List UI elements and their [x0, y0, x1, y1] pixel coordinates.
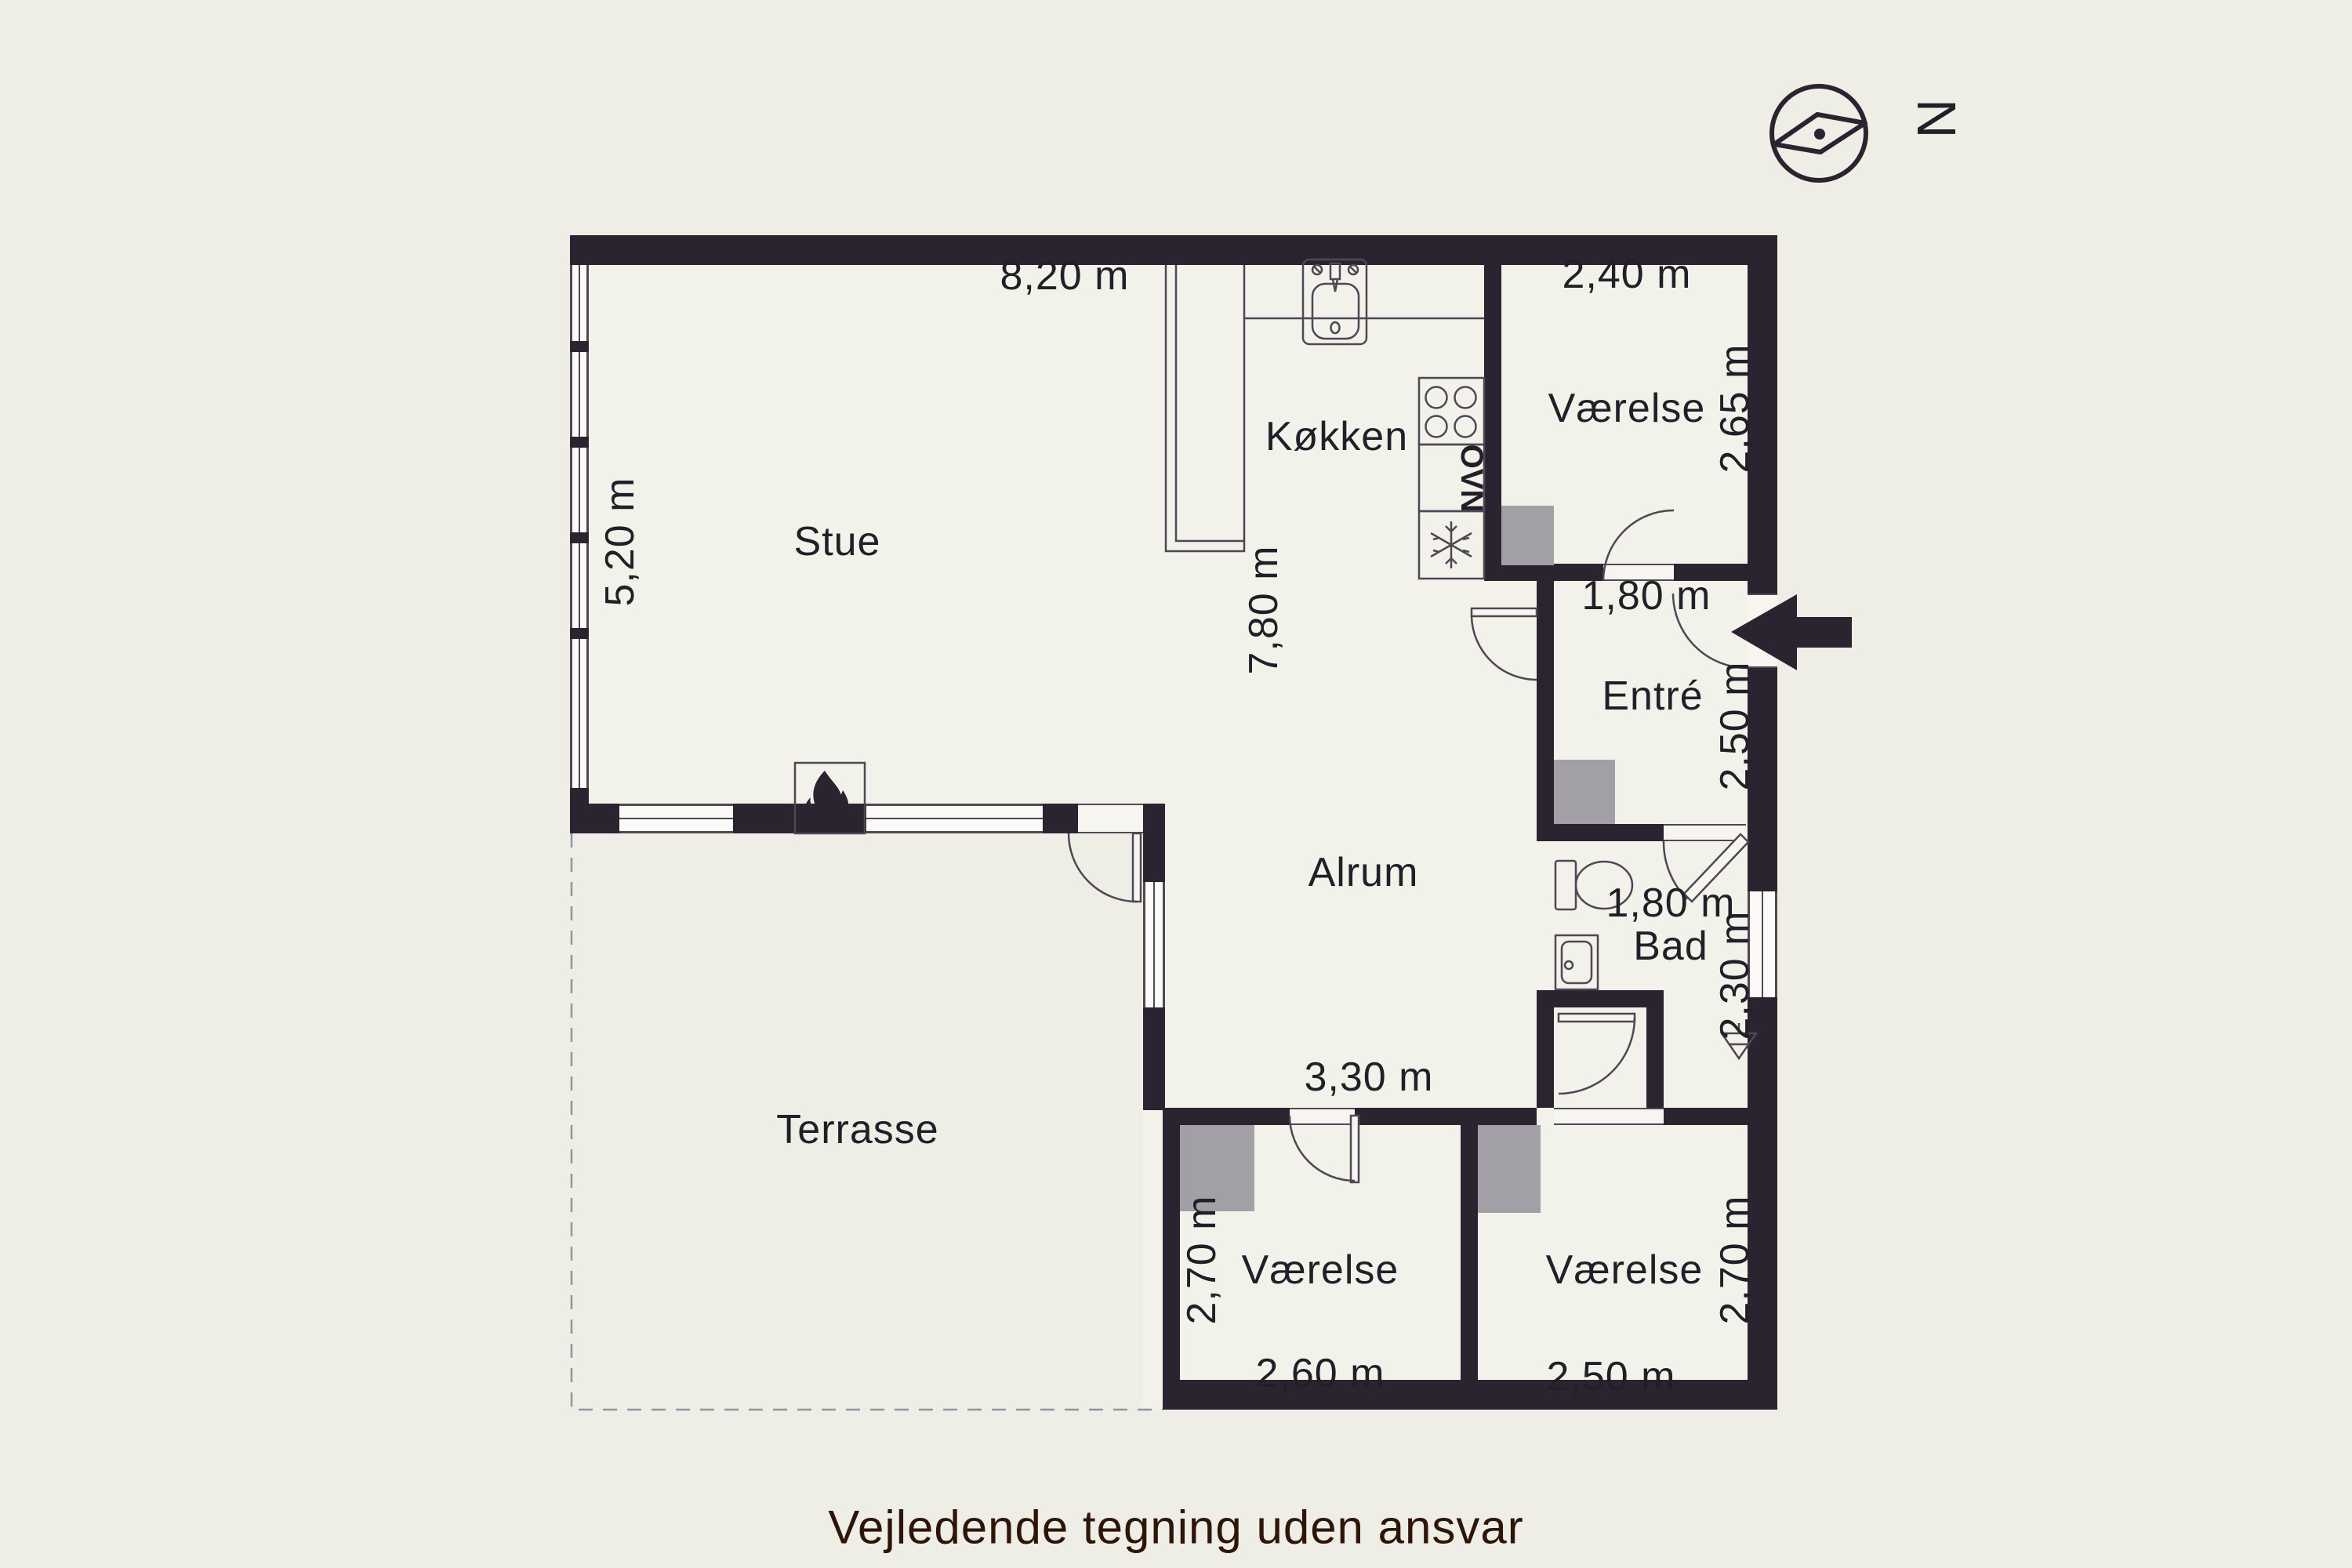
fire-icon: [795, 763, 865, 833]
burners-icon: [1419, 378, 1484, 445]
dim-hall-width: 1,80 m: [1582, 572, 1711, 619]
dim-bad-height: 2,30 m: [1711, 911, 1759, 1040]
door-room-sw: [1290, 1116, 1359, 1182]
door-terrace: [1069, 833, 1141, 902]
dim-vaerelse-ne-height: 2,65 m: [1711, 344, 1759, 474]
dim-vaerelse-se-width: 2,50 m: [1547, 1353, 1676, 1400]
entry-arrow-icon: [1731, 594, 1852, 670]
floorplan: N OVN Stue 8,20 m 5,20 m Køkken 7,80 m V…: [0, 0, 2352, 1568]
room-label-bad: Bad: [1633, 923, 1708, 970]
dim-vaerelse-ne-width: 2,40 m: [1563, 251, 1692, 298]
room-label-vaerelse-se: Værelse: [1546, 1247, 1704, 1294]
disclaimer-text: Vejledende tegning uden ansvar: [828, 1501, 1523, 1555]
room-label-vaerelse-sw: Værelse: [1242, 1247, 1399, 1294]
sink-icon: [1303, 260, 1367, 344]
door-room-ne: [1603, 510, 1674, 581]
dim-entre-height: 2,50 m: [1711, 662, 1759, 791]
fixtures-layer: N OVN: [0, 0, 2352, 1568]
dim-kokken-depth: 7,80 m: [1240, 546, 1287, 675]
dim-stue-height: 5,20 m: [597, 477, 644, 607]
compass-icon: [1772, 86, 1866, 180]
door-hall: [1472, 608, 1537, 680]
compass-north-label: N: [1906, 99, 1967, 139]
room-label-alrum: Alrum: [1308, 849, 1419, 896]
room-label-entre: Entré: [1602, 673, 1703, 720]
oven-label: OVN: [1454, 445, 1489, 513]
room-label-stue: Stue: [794, 518, 881, 565]
door-room-se: [1559, 1014, 1635, 1094]
room-label-vaerelse-ne: Værelse: [1548, 385, 1706, 432]
dim-vaerelse-sw-width: 2,60 m: [1256, 1350, 1385, 1397]
washbasin-icon: [1555, 935, 1598, 989]
snowflake-icon: [1419, 511, 1484, 579]
dim-vaerelse-se-height: 2,70 m: [1711, 1196, 1759, 1325]
dim-stue-width: 8,20 m: [1000, 252, 1130, 299]
room-label-terrasse: Terrasse: [776, 1106, 938, 1153]
dim-alrum-width: 3,30 m: [1305, 1054, 1434, 1101]
dim-vaerelse-sw-height: 2,70 m: [1178, 1196, 1225, 1325]
room-label-kokken: Køkken: [1265, 413, 1408, 460]
